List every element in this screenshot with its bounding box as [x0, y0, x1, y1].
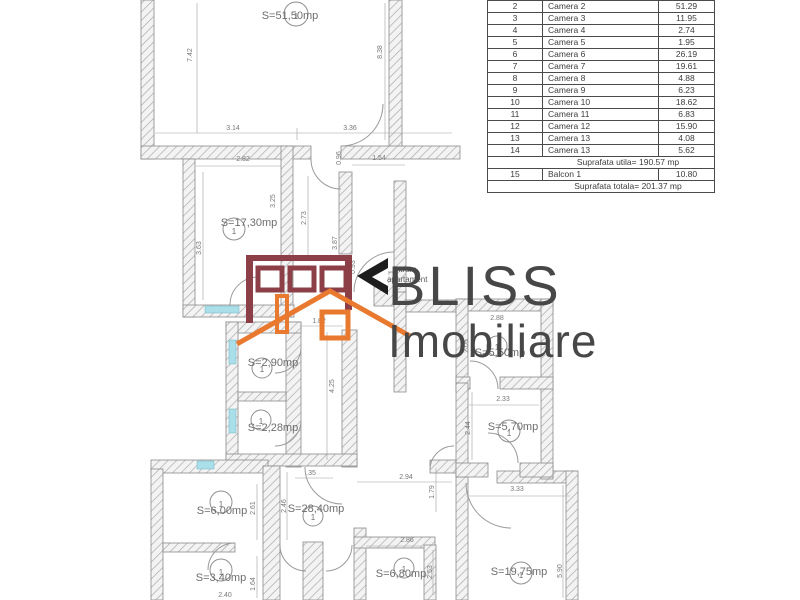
door-arc — [326, 545, 352, 571]
table-cell-name: Camera 8 — [543, 73, 659, 84]
room-label: 1 S=3,40mp — [196, 559, 246, 584]
dim-text: 4.25 — [329, 379, 336, 393]
dim-text: 2.86 — [400, 537, 414, 544]
brand-name: BLISS — [388, 254, 562, 317]
dim-text: 3.14 — [226, 125, 240, 132]
brand-subname: Imobiliare — [388, 315, 597, 367]
dim-text: 3.25 — [270, 194, 277, 208]
table-cell-value: 10.80 — [659, 169, 714, 180]
table-row: 6Camera 626.19 — [488, 48, 714, 60]
table-cell-no: 11 — [488, 109, 543, 120]
room-label: 1 S=28,40mp — [288, 503, 345, 526]
table-cell-value: 6.83 — [659, 109, 714, 120]
window-sill — [229, 340, 236, 364]
table-cell-name: Camera 11 — [543, 109, 659, 120]
table-merged-cell: Suprafata totala= 201.37 mp — [488, 181, 714, 192]
svg-text:S=17,30mp: S=17,30mp — [221, 217, 278, 229]
window-sill — [205, 306, 239, 313]
window-sill — [229, 409, 236, 433]
dim-text: 2.73 — [301, 211, 308, 225]
dim-text: 3.33 — [510, 486, 524, 493]
door-arc — [280, 545, 306, 571]
table-cell-value: 11.95 — [659, 13, 714, 24]
table-cell-name: Camera 3 — [543, 13, 659, 24]
table-cell-no: 14 — [488, 145, 543, 156]
room-label: 1 S=6,80mp — [376, 558, 426, 580]
table-row: 3Camera 311.95 — [488, 12, 714, 24]
table-row: 7Camera 719.61 — [488, 60, 714, 72]
svg-text:S=28,40mp: S=28,40mp — [288, 503, 345, 515]
table-cell-name: Camera 12 — [543, 121, 659, 132]
table-cell-name: Camera 7 — [543, 61, 659, 72]
table-cell-no: 13 — [488, 133, 543, 144]
table-row: 11Camera 116.83 — [488, 108, 714, 120]
table-cell-no: 2 — [488, 1, 543, 12]
dim-text: 8.38 — [377, 45, 384, 59]
dim-text: 5.90 — [557, 564, 564, 578]
table-cell-no: 5 — [488, 37, 543, 48]
dim-text: 2.44 — [465, 421, 472, 435]
dim-text: 2.53 — [427, 565, 434, 579]
table-row: 2Camera 251.29 — [488, 0, 714, 12]
table-cell-no: 3 — [488, 13, 543, 24]
svg-text:S=51,50mp: S=51,50mp — [262, 10, 319, 22]
table-row: 14Camera 135.62 — [488, 144, 714, 156]
table-cell-value: 4.88 — [659, 73, 714, 84]
dim-text: 0.96 — [336, 151, 343, 165]
table-row: Suprafata utila= 190.57 mp — [488, 156, 714, 168]
room-label: 1 S=19,75mp — [491, 562, 548, 584]
svg-text:S=6,80mp: S=6,80mp — [376, 568, 426, 580]
table-cell-name: Camera 13 — [543, 133, 659, 144]
dim-text: 3.63 — [196, 241, 203, 255]
door-arc — [488, 433, 518, 463]
entry-arrow-icon — [357, 258, 388, 295]
door-arc — [230, 277, 258, 305]
table-cell-value: 2.74 — [659, 25, 714, 36]
table-cell-name: Balcon 1 — [543, 169, 659, 180]
svg-text:S=3,40mp: S=3,40mp — [196, 572, 246, 584]
table-cell-no: 12 — [488, 121, 543, 132]
door-arc — [466, 483, 511, 528]
table-row: 9Camera 96.23 — [488, 84, 714, 96]
table-row: 8Camera 84.88 — [488, 72, 714, 84]
room-label: 1 S=51,50mp — [262, 2, 319, 26]
window-sill — [197, 461, 214, 469]
table-cell-no: 8 — [488, 73, 543, 84]
dim-text: 2.33 — [496, 396, 510, 403]
table-cell-value: 1.95 — [659, 37, 714, 48]
table-cell-no: 15 — [488, 169, 543, 180]
table-cell-value: 4.08 — [659, 133, 714, 144]
dim-text: 7.42 — [187, 48, 194, 62]
table-cell-no: 10 — [488, 97, 543, 108]
table-cell-name: Camera 6 — [543, 49, 659, 60]
room-label: 1 S=17,30mp — [221, 217, 278, 240]
table-cell-no: 4 — [488, 25, 543, 36]
table-merged-cell: Suprafata utila= 190.57 mp — [488, 157, 714, 168]
table-cell-no: 7 — [488, 61, 543, 72]
table-cell-no: 6 — [488, 49, 543, 60]
area-table: 2Camera 251.293Camera 311.954Camera 42.7… — [487, 0, 715, 193]
table-cell-no: 9 — [488, 85, 543, 96]
svg-text:S=5,70mp: S=5,70mp — [488, 421, 538, 433]
table-cell-value: 5.62 — [659, 145, 714, 156]
table-cell-value: 18.62 — [659, 97, 714, 108]
dim-text: .35 — [306, 470, 316, 477]
table-cell-value: 51.29 — [659, 1, 714, 12]
table-cell-name: Camera 10 — [543, 97, 659, 108]
room-label: 1 S=6,00mp — [197, 491, 247, 517]
table-cell-value: 26.19 — [659, 49, 714, 60]
table-cell-value: 15.90 — [659, 121, 714, 132]
table-cell-value: 6.23 — [659, 85, 714, 96]
room-label: 1 S=5,70mp — [488, 420, 538, 442]
dim-text: 2.94 — [399, 474, 413, 481]
svg-text:S=6,00mp: S=6,00mp — [197, 505, 247, 517]
table-cell-name: Camera 4 — [543, 25, 659, 36]
svg-text:S=2,28mp: S=2,28mp — [248, 422, 298, 434]
dim-text: 1.64 — [250, 577, 257, 591]
table-cell-value: 19.61 — [659, 61, 714, 72]
table-row: 4Camera 42.74 — [488, 24, 714, 36]
dim-text: 2.40 — [218, 592, 232, 599]
table-cell-name: Camera 2 — [543, 1, 659, 12]
table-row: Suprafata totala= 201.37 mp — [488, 180, 714, 192]
dim-text: 2.82 — [236, 156, 250, 163]
svg-text:S=19,75mp: S=19,75mp — [491, 566, 548, 578]
floorplan-screenshot: 7.42 8.38 3.14 3.36 2.82 0.96 1.54 3.25 … — [0, 0, 800, 600]
dim-text: 3.87 — [332, 236, 339, 250]
dim-text: 1.54 — [372, 155, 386, 162]
svg-text:S=2,90mp: S=2,90mp — [248, 357, 298, 369]
table-cell-name: Camera 13 — [543, 145, 659, 156]
dim-text: 3.36 — [343, 125, 357, 132]
table-row: 5Camera 51.95 — [488, 36, 714, 48]
dim-text: 2.61 — [250, 501, 257, 515]
dim-text: 1.79 — [429, 485, 436, 499]
table-cell-name: Camera 9 — [543, 85, 659, 96]
table-row: 10Camera 1018.62 — [488, 96, 714, 108]
table-row: 13Camera 134.08 — [488, 132, 714, 144]
table-cell-name: Camera 5 — [543, 37, 659, 48]
table-row: 12Camera 1215.90 — [488, 120, 714, 132]
table-row: 15Balcon 110.80 — [488, 168, 714, 180]
